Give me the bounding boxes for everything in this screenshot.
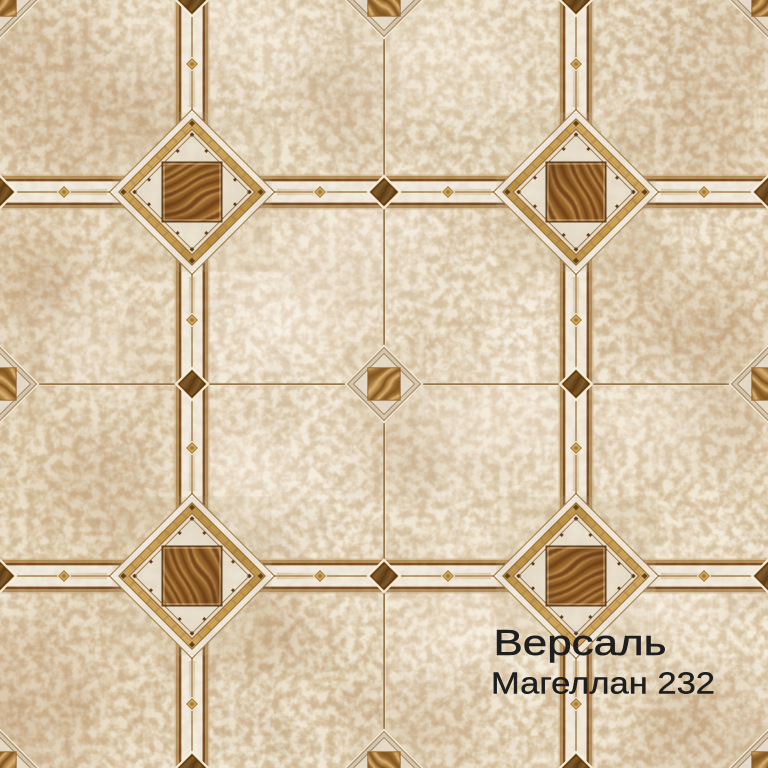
svg-text:Версаль: Версаль [494, 622, 667, 663]
svg-text:Магеллан 232: Магеллан 232 [491, 667, 715, 701]
